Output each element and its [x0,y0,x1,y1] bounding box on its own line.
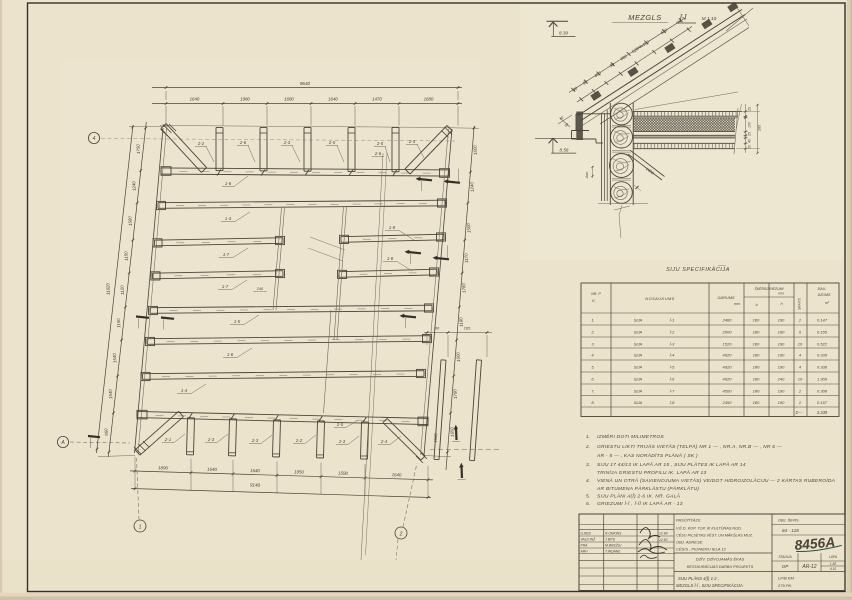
svg-text:SIJA: SIJA [634,329,643,334]
svg-text:2-3: 2-3 [338,439,346,444]
svg-text:SIJU 17 44/13 IK LAPĀ AR 15: SIJU 17 44/13 IK LAPĀ AR 15 , SIJU PLĀTE… [597,461,746,468]
svg-text:SIJA: SIJA [634,317,643,322]
svg-text:VIENĀ UN OTRĀ (SAVIENOJUMA VIE: VIENĀ UN OTRĀ (SAVIENOJUMA VIETĀS) VEIDO… [597,477,835,484]
svg-text:180: 180 [753,352,760,357]
svg-text:PASŪTĪTĀJS:: PASŪTĪTĀJS: [676,518,701,523]
svg-text:1680: 1680 [284,97,294,102]
svg-text:0.338: 0.338 [817,364,828,369]
svg-text:2450: 2450 [722,400,733,405]
svg-text:8.39: 8.39 [559,31,568,36]
svg-text:AR BITUMENA PĀRKLĀSTU (PĀRKLĀT: AR BITUMENA PĀRKLĀSTU (PĀRKLĀTU) [596,485,699,492]
svg-text:2-3: 2-3 [283,140,291,145]
svg-text:1500: 1500 [466,223,472,234]
svg-text:MEZGLS Ī-Ī , SIJU SPECIFIKĀCIJ: MEZGLS Ī-Ī , SIJU SPECIFIKĀCIJA [676,583,743,588]
svg-text:1500: 1500 [455,352,461,363]
svg-text:1640: 1640 [207,467,217,472]
svg-text:SKAITS: SKAITS [798,297,802,310]
svg-text:1-6: 1-6 [227,352,234,357]
svg-text:1520: 1520 [723,341,733,346]
svg-text:10: 10 [798,376,803,381]
svg-text:20: 20 [748,107,752,112]
svg-text:1-5: 1-5 [234,319,241,324]
svg-text:4: 4 [93,136,96,142]
svg-text:1-7: 1-7 [222,284,229,289]
svg-text:SIJU SPECIFIKĀCIJA: SIJU SPECIFIKĀCIJA [666,266,730,273]
svg-text:4.: 4. [591,352,594,357]
svg-text:DAU-: DAU- [818,287,828,291]
svg-text:80: 80 [435,326,440,331]
svg-text:40: 40 [748,139,752,143]
svg-text:190: 190 [778,364,785,369]
svg-text:2-6: 2-6 [239,140,247,145]
svg-text:190: 190 [778,352,785,357]
svg-text:240: 240 [256,287,264,291]
svg-text:11620: 11620 [105,282,111,295]
svg-text:2-6: 2-6 [374,151,382,156]
svg-text:190: 190 [778,400,785,405]
svg-text:190: 190 [778,317,785,322]
svg-text:GRIEZUMI Ī-Ī , Ī-ĪĪ IK LAPĀ: GRIEZUMI Ī-Ī , Ī-ĪĪ IK LAPĀ AR - 13 [597,500,683,507]
svg-text:0.522: 0.522 [817,341,828,346]
svg-text:V.Ē.D. KOP. TOP. IK KULTŪRAS N: V.Ē.D. KOP. TOP. IK KULTŪRAS NOD. [676,527,742,531]
svg-text:12.83: 12.83 [659,538,668,542]
svg-text:K.: K. [592,299,595,303]
svg-text:9140: 9140 [250,482,261,487]
svg-text:1150: 1150 [123,251,129,261]
svg-text:1150: 1150 [116,318,122,328]
svg-text:mm: mm [734,302,740,306]
svg-text:1890: 1890 [158,465,168,470]
svg-text:205: 205 [758,125,762,132]
svg-text:M.BREŽG/: M.BREŽG/ [605,543,622,548]
svg-text:CĒSIS , PIONIERU IELA 12: CĒSIS , PIONIERU IELA 12 [676,547,727,552]
svg-text:1.: 1. [591,317,594,322]
svg-text:b: b [755,303,757,307]
svg-text:1640: 1640 [250,468,260,473]
svg-text:12.84: 12.84 [659,532,668,536]
svg-text:1470: 1470 [372,97,382,102]
svg-text:5.: 5. [586,494,590,500]
svg-text:4cm: 4cm [585,172,589,179]
svg-text:4.: 4. [586,478,590,484]
svg-text:SIJU PLĀNS 4(Ī) 1-2 ,: SIJU PLĀNS 4(Ī) 1-2 , [678,576,719,581]
svg-text:2.: 2. [585,444,590,450]
svg-text:180: 180 [753,364,760,369]
svg-text:3.339: 3.339 [817,410,828,415]
svg-text:1-6: 1-6 [225,181,232,186]
svg-text:0.147: 0.147 [817,317,828,322]
svg-text:8.58: 8.58 [560,147,569,152]
svg-text:1-4: 1-4 [225,216,232,221]
svg-text:SIJA: SIJA [634,400,643,405]
svg-text:STADIJA: STADIJA [778,555,792,559]
svg-text:1170: 1170 [464,253,470,263]
svg-text:2-2: 2-2 [295,438,303,443]
svg-text:25: 25 [748,132,752,137]
svg-text:Ī-1: Ī-1 [670,317,675,322]
svg-text:SIJA: SIJA [634,364,643,369]
svg-text:4920: 4920 [723,376,733,381]
svg-text:3.: 3. [591,341,594,346]
svg-text:0.155: 0.155 [817,329,828,334]
svg-text:8.: 8. [591,400,594,405]
svg-text:GRIESTU LIKTI TRIJĀS VIETĀS (T: GRIESTU LIKTI TRIJĀS VIETĀS (TELPĀ) NR 1… [597,443,782,450]
svg-text:R.ONKINS: R.ONKINS [605,532,622,536]
svg-text:1240: 1240 [131,181,137,192]
svg-text:ARH: ARH [580,549,589,553]
svg-text:180: 180 [753,376,760,381]
svg-text:1950: 1950 [294,469,304,474]
svg-text:1680: 1680 [424,97,434,102]
svg-text:Ī-6: Ī-6 [670,376,675,381]
svg-text:1650: 1650 [449,426,455,437]
svg-text:1.309: 1.309 [817,376,828,381]
svg-text:1640: 1640 [392,472,402,477]
svg-text:0.157: 0.157 [817,400,828,405]
svg-text:165: 165 [464,326,471,331]
svg-text:NOSAUKUMS: NOSAUKUMS [645,296,674,301]
svg-text:1500: 1500 [472,145,478,156]
svg-text:950: 950 [104,428,109,436]
svg-text:SIJA: SIJA [634,341,643,346]
svg-text:Ī-2: Ī-2 [670,329,675,334]
svg-text:1640: 1640 [328,97,338,102]
svg-text:190: 190 [778,329,785,334]
svg-text:2-1: 2-1 [164,437,172,442]
svg-text:180: 180 [753,317,760,322]
svg-text:2: 2 [399,531,403,537]
svg-text:SIJA: SIJA [634,376,643,381]
svg-text:DZUMS: DZUMS [818,293,831,297]
svg-text:2000: 2000 [722,329,733,334]
svg-text:IZMĒRI DOTI MILIMETROS: IZMĒRI DOTI MILIMETROS [597,433,664,440]
svg-text:LAPA: LAPA [829,555,837,559]
svg-text:1500: 1500 [433,432,439,442]
svg-text:1-8: 1-8 [387,256,394,261]
svg-text:1590: 1590 [338,471,348,476]
svg-text:2.: 2. [590,329,594,334]
svg-text:mm: mm [778,292,784,296]
svg-text:2-5: 2-5 [376,141,384,146]
svg-text:10: 10 [798,341,803,346]
svg-text:180: 180 [753,341,760,346]
svg-text:1: 1 [139,524,142,530]
svg-text:Ī-8: Ī-8 [670,400,675,405]
svg-text:VALD.INŽ: VALD.INŽ [581,537,597,542]
svg-text:T.INDANE: T.INDANE [605,549,621,553]
svg-text:SIJU PLĀNI A(Ī) 2-6 IK. NR. G: SIJU PLĀNI A(Ī) 2-6 IK. NR. GALĀ [597,493,680,500]
svg-text:Ī-7: Ī-7 [670,388,675,393]
svg-text:1540: 1540 [112,353,118,364]
svg-text:4.10: 4.10 [830,567,836,571]
svg-text:AR-12: AR-12 [801,564,816,570]
svg-text:180: 180 [753,388,760,393]
svg-text:190: 190 [778,341,785,346]
svg-text:Σ—: Σ— [795,410,804,415]
svg-text:279 PK.: 279 PK. [777,583,792,588]
svg-text:Ī-4: Ī-4 [670,352,675,357]
svg-text:2-4: 2-4 [408,139,416,144]
svg-text:84 - 128: 84 - 128 [782,528,799,533]
svg-text:2480: 2480 [722,317,733,322]
svg-text:2-4: 2-4 [380,439,388,444]
svg-text:190: 190 [778,388,785,393]
svg-text:2-5: 2-5 [328,140,336,145]
svg-text:Ī-5: Ī-5 [670,364,675,369]
svg-text:CĒSU PILSĒTAS VĒST. UN MĀKŠLAS: CĒSU PILSĒTAS VĒST. UN MĀKŠLAS MUZ. [676,533,753,538]
svg-text:180: 180 [753,400,760,405]
svg-text:240: 240 [777,376,785,381]
svg-text:h: h [780,302,782,306]
svg-text:0.308: 0.308 [817,388,828,393]
svg-text:OBJ. ŠIFRS: OBJ. ŠIFRS [778,518,799,523]
svg-text:2-5: 2-5 [336,422,344,427]
svg-text:1640: 1640 [190,97,200,102]
svg-text:OBJ. ADRESE:: OBJ. ADRESE: [676,540,703,545]
svg-text:4500: 4500 [723,388,733,393]
svg-text:1-4: 1-4 [181,388,188,393]
svg-text:7.: 7. [591,388,594,393]
svg-text:GARUMS: GARUMS [717,295,734,300]
svg-text:6.: 6. [586,501,590,507]
svg-text:1980: 1980 [240,97,250,102]
svg-text:Ī-3: Ī-3 [670,341,675,346]
svg-text:20: 20 [748,145,752,150]
svg-text:1540: 1540 [108,389,114,400]
svg-text:5.: 5. [591,364,594,369]
svg-text:1240: 1240 [469,181,475,192]
svg-text:2-3: 2-3 [207,437,215,442]
svg-text:1-50: 1-50 [830,562,837,566]
svg-text:1750: 1750 [135,144,141,155]
svg-text:1.: 1. [586,434,590,440]
svg-text:PRA: PRA [581,544,589,548]
svg-text:SIJA: SIJA [634,388,643,393]
svg-text:G.RED: G.RED [581,532,592,536]
svg-text:NR. P: NR. P [591,292,601,296]
svg-text:180: 180 [753,329,760,334]
svg-text:RESTAURĀCIJAS DARBU PROJEKTS: RESTAURĀCIJAS DARBU PROJEKTS [687,565,754,569]
svg-text:AR - 5 — , KAS NORĀDĪT: AR - 5 — , KAS NORĀDĪTS PLĀNĀ ( SK ) [596,452,698,459]
svg-text:4920: 4920 [723,364,733,369]
svg-text:1580: 1580 [127,216,133,227]
svg-text:SIJA: SIJA [634,352,643,357]
svg-text:ŠĶĒRSGRIEZUMI: ŠĶĒRSGRIEZUMI [755,286,784,291]
svg-text:LP/B KM: LP/B KM [778,576,794,581]
svg-text:TRINĪJA GRIESTU PROFILU IK. LA: TRINĪJA GRIESTU PROFILU IK. LAPĀ AR 13 [597,469,706,476]
svg-text:OP: OP [782,564,790,569]
svg-text:2-3: 2-3 [251,438,259,443]
svg-text:0.339: 0.339 [817,352,828,357]
svg-text:9640: 9640 [300,81,311,86]
svg-text:6.: 6. [591,376,594,381]
svg-text:A: A [60,440,65,446]
svg-text:DZĪV. DZĪVOJAMĀS ĒKAS: DZĪV. DZĪVOJAMĀS ĒKAS [696,557,745,562]
svg-text:3.: 3. [586,462,590,468]
svg-text:2-2: 2-2 [197,141,205,146]
svg-text:1-7: 1-7 [223,252,230,257]
svg-text:T.BITE: T.BITE [605,538,616,542]
svg-text:1120: 1120 [120,285,126,295]
svg-text:MEZGLS: MEZGLS [628,13,661,22]
svg-text:1780: 1780 [452,389,458,400]
svg-text:1-8: 1-8 [389,225,396,230]
svg-text:100: 100 [748,122,752,128]
svg-text:1780: 1780 [461,283,467,294]
svg-text:4920: 4920 [723,352,733,357]
